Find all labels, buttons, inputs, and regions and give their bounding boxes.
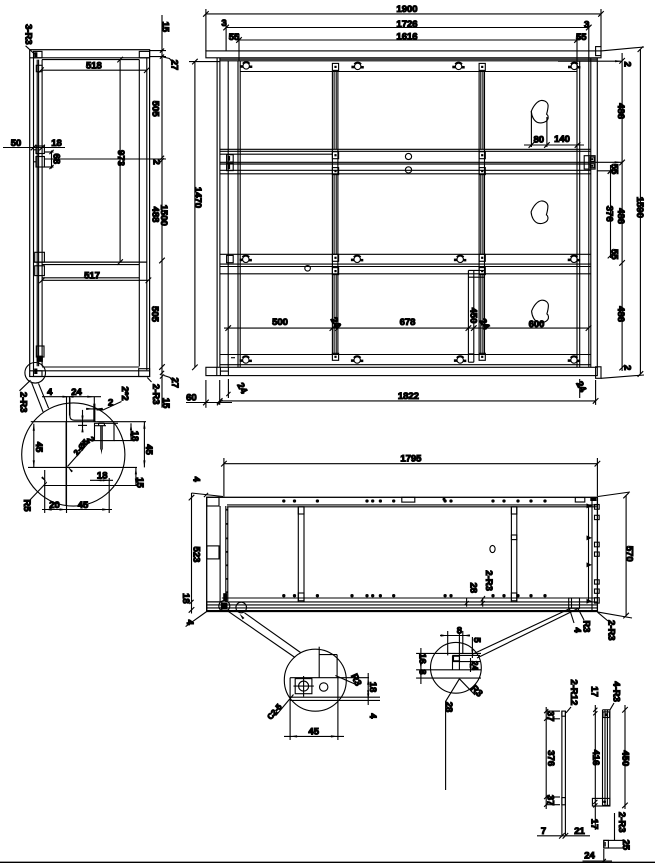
svg-text:55: 55: [609, 249, 620, 260]
svg-text:2-R3: 2-R3: [483, 570, 494, 591]
svg-text:4: 4: [571, 627, 582, 633]
svg-text:450: 450: [467, 308, 478, 324]
svg-text:4-R3: 4-R3: [611, 681, 622, 702]
svg-text:45: 45: [33, 442, 44, 453]
svg-text:7: 7: [541, 826, 546, 837]
svg-text:15: 15: [159, 22, 170, 33]
svg-text:21: 21: [574, 826, 585, 837]
svg-text:2: 2: [108, 398, 113, 409]
svg-text:4: 4: [367, 713, 378, 719]
svg-text:486: 486: [615, 208, 626, 224]
svg-text:505: 505: [149, 101, 160, 118]
svg-text:2: 2: [621, 365, 632, 370]
svg-text:500: 500: [272, 317, 288, 328]
svg-text:50: 50: [11, 138, 22, 149]
svg-text:486: 486: [615, 103, 626, 119]
svg-text:3-R3: 3-R3: [23, 24, 34, 45]
svg-text:R5: R5: [21, 499, 32, 512]
svg-text:1726: 1726: [396, 19, 417, 30]
svg-text:28: 28: [467, 583, 478, 594]
svg-text:55: 55: [576, 32, 587, 43]
svg-text:60: 60: [186, 393, 197, 404]
svg-text:2-R12: 2-R12: [568, 679, 579, 705]
svg-text:3: 3: [584, 19, 589, 30]
svg-text:4: 4: [47, 387, 53, 398]
svg-text:1590: 1590: [634, 197, 645, 218]
svg-text:450: 450: [620, 750, 631, 766]
svg-text:973: 973: [115, 150, 126, 166]
svg-text:523: 523: [191, 547, 202, 563]
svg-text:1900: 1900: [396, 4, 417, 15]
svg-text:2-R3: 2-R3: [150, 384, 161, 405]
svg-text:505: 505: [149, 306, 160, 323]
svg-text:517: 517: [84, 270, 100, 281]
svg-text:140: 140: [554, 134, 570, 145]
svg-text:24: 24: [71, 387, 82, 398]
svg-text:416: 416: [590, 750, 601, 766]
svg-text:8: 8: [457, 626, 462, 637]
svg-text:27: 27: [169, 378, 180, 389]
svg-text:18: 18: [180, 593, 191, 604]
svg-text:8: 8: [417, 669, 428, 674]
svg-text:3: 3: [221, 18, 226, 29]
svg-text:37: 37: [545, 795, 556, 806]
svg-text:18: 18: [51, 138, 62, 149]
svg-text:2-R3: 2-R3: [605, 620, 616, 641]
svg-text:18: 18: [129, 431, 140, 442]
svg-text:80: 80: [534, 135, 545, 146]
svg-text:5: 5: [471, 637, 482, 643]
svg-text:2-R3: 2-R3: [17, 392, 28, 413]
svg-text:1822: 1822: [398, 391, 419, 402]
svg-text:2: 2: [621, 62, 632, 67]
svg-text:678: 678: [400, 317, 416, 328]
svg-text:570: 570: [623, 546, 634, 562]
svg-text:24: 24: [584, 851, 595, 862]
svg-text:1795: 1795: [400, 454, 422, 465]
svg-text:37: 37: [545, 711, 556, 722]
svg-text:376: 376: [545, 750, 556, 766]
svg-text:15: 15: [134, 477, 145, 488]
svg-text:1470: 1470: [192, 187, 203, 208]
svg-text:1500: 1500: [158, 205, 169, 226]
svg-text:25: 25: [620, 840, 631, 851]
svg-text:376: 376: [603, 206, 614, 222]
svg-text:24: 24: [470, 661, 479, 670]
svg-text:1616: 1616: [396, 31, 417, 42]
svg-text:45: 45: [143, 444, 154, 455]
svg-text:2-R3: 2-R3: [616, 812, 627, 833]
svg-text:17: 17: [589, 819, 600, 830]
svg-text:4: 4: [191, 477, 202, 483]
svg-text:2*2: 2*2: [119, 386, 130, 400]
svg-text:20: 20: [49, 500, 60, 511]
svg-text:600: 600: [529, 319, 545, 330]
svg-text:18: 18: [97, 471, 108, 482]
svg-text:27: 27: [169, 60, 180, 71]
svg-text:518: 518: [86, 60, 102, 71]
svg-text:2: 2: [151, 159, 162, 164]
svg-text:28: 28: [443, 702, 454, 713]
svg-text:45: 45: [308, 726, 319, 737]
svg-text:486: 486: [615, 306, 626, 322]
svg-text:55: 55: [229, 32, 240, 43]
svg-text:17: 17: [589, 686, 600, 697]
svg-text:16: 16: [417, 653, 428, 664]
svg-text:45: 45: [78, 500, 89, 511]
